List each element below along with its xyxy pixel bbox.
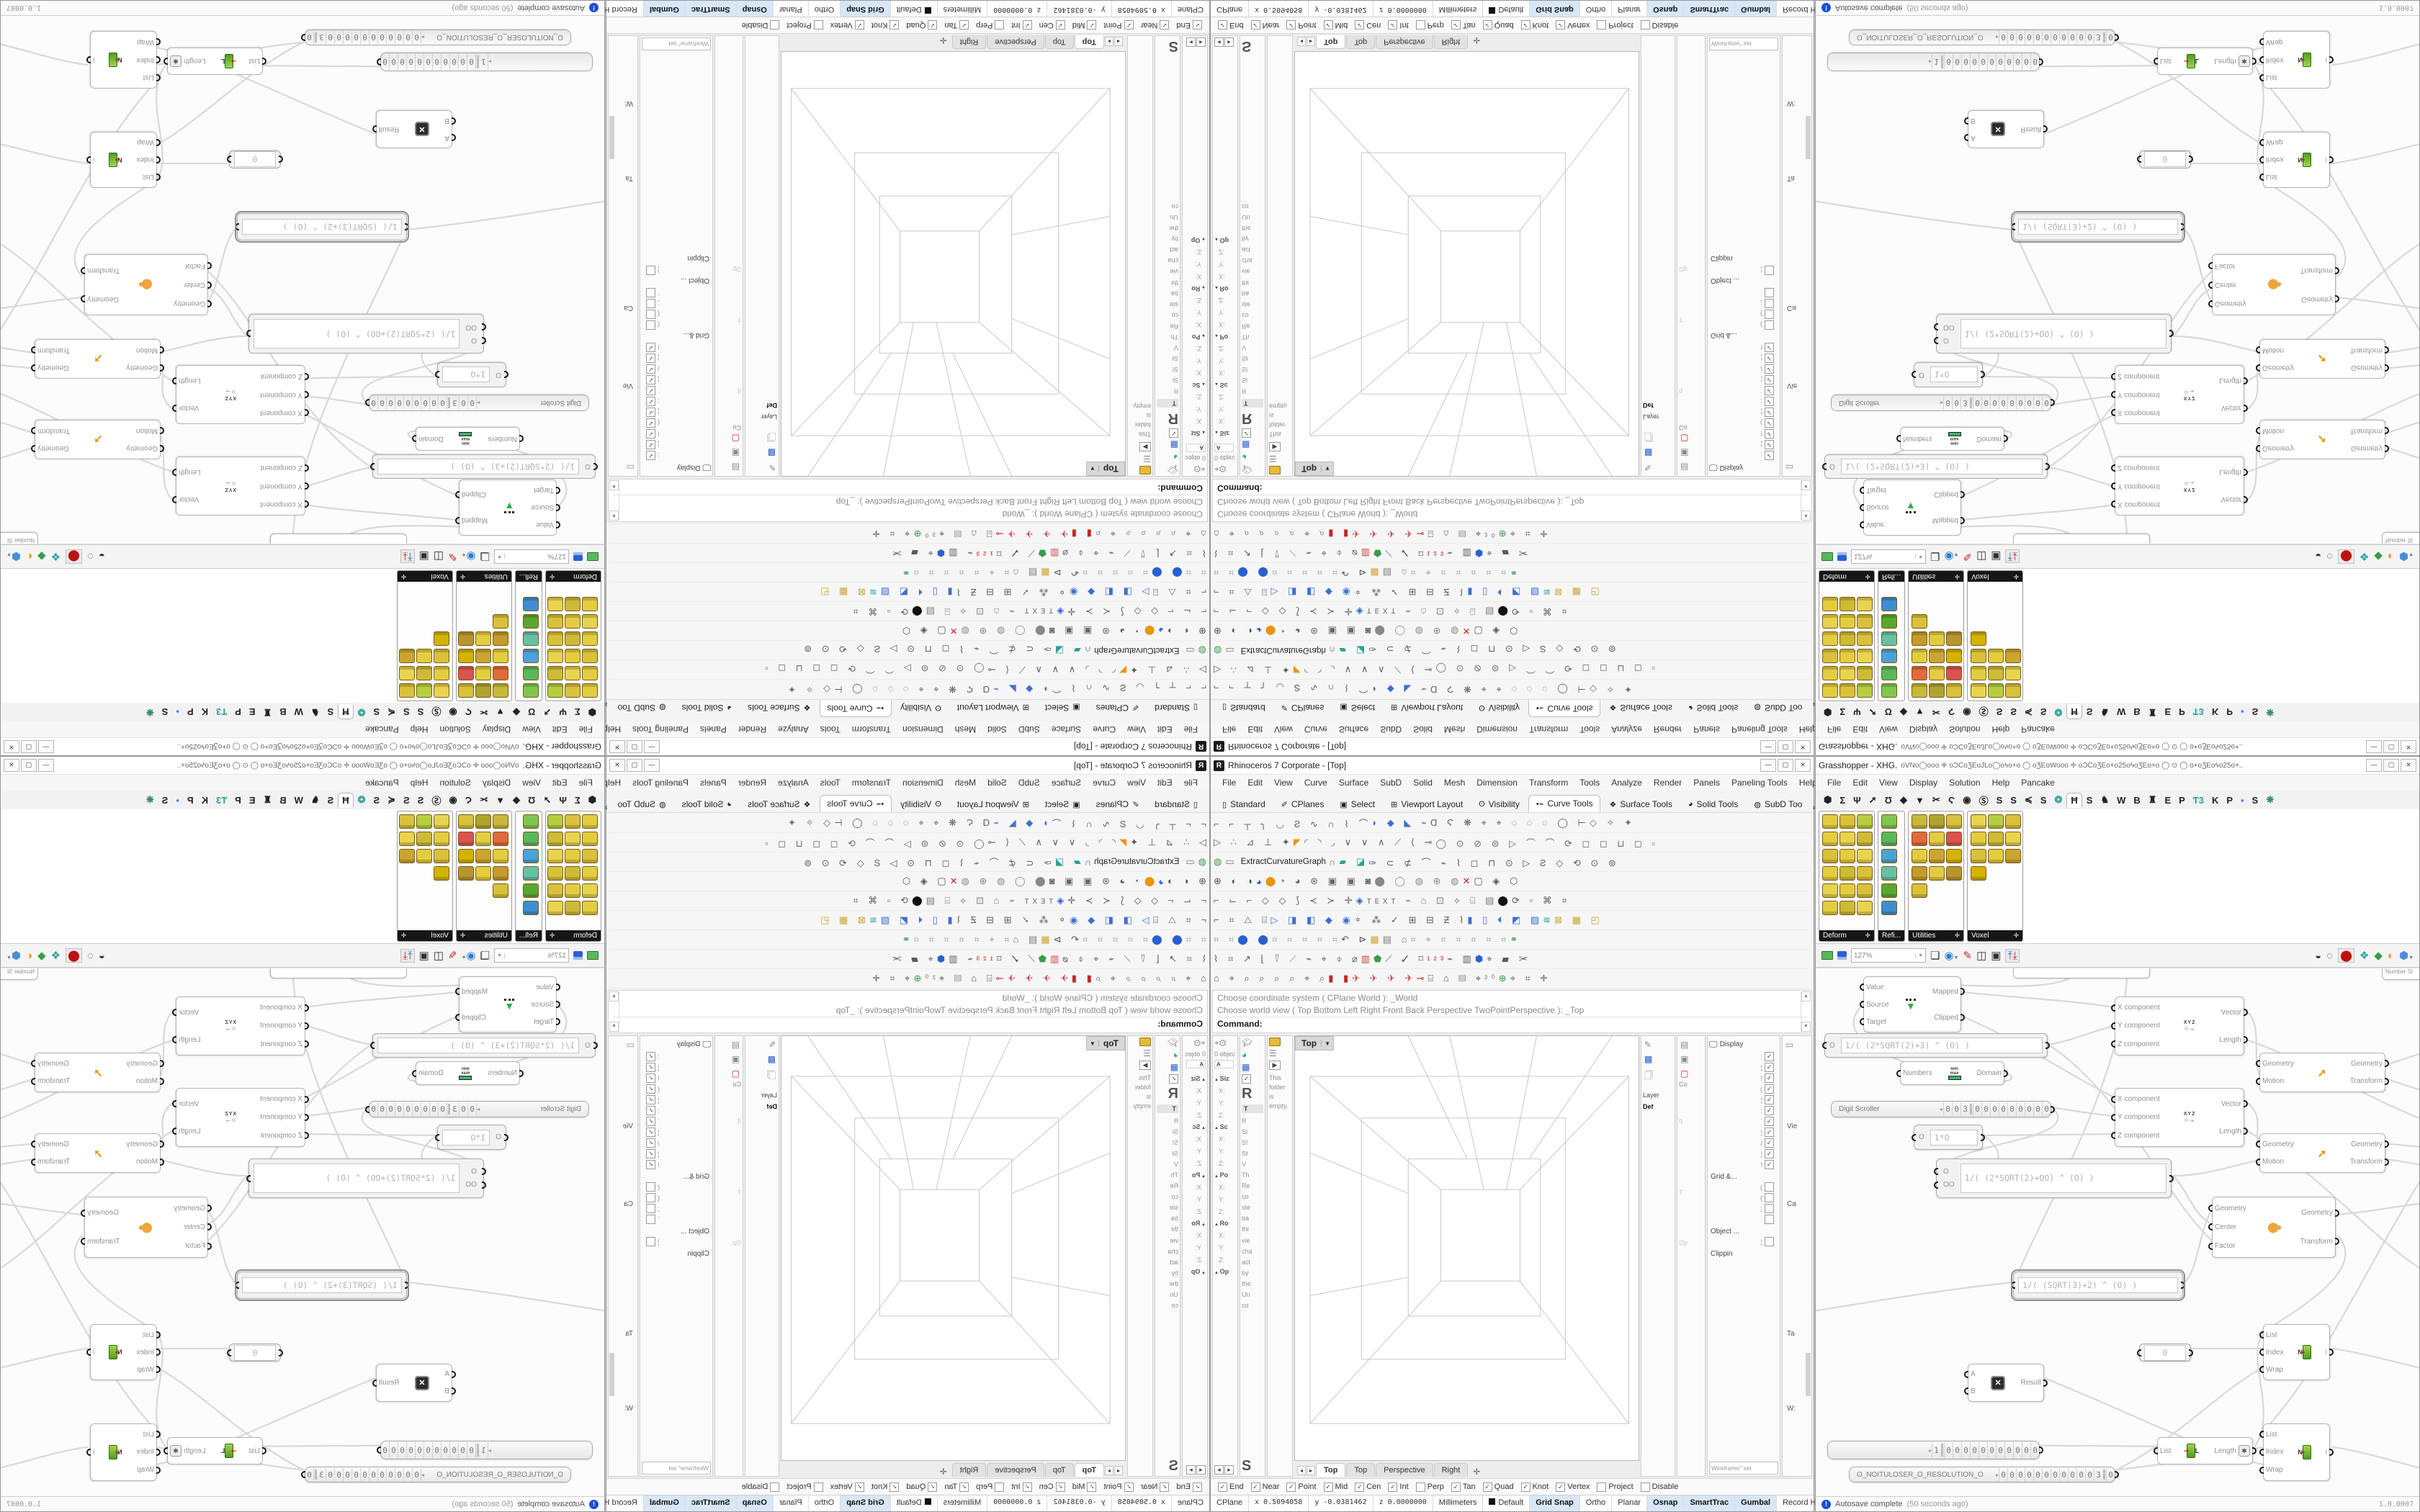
digit-cell[interactable]: 0 (1953, 1442, 1961, 1458)
gh-node-remap[interactable]: Value Source Target ▼ Mapped Clipped (1863, 480, 1961, 536)
rhino-toolbar-row-3[interactable]: ◍▭ExtractCurvatureGraph∩▰ ◪✑ ⊂ ⊄ ⌒ ⌁ ⌇ ◻… (609, 640, 1206, 660)
component-icon[interactable] (434, 683, 449, 698)
component-icon[interactable] (523, 649, 539, 663)
display-checkbox-row[interactable]: !✓ (1709, 1073, 1778, 1084)
gh-node-list-item-1[interactable]: List Index Wrap N i (90, 1324, 157, 1380)
tab-item[interactable]: ◆ (1896, 793, 1911, 807)
status-layer[interactable]: Default (890, 1495, 937, 1511)
input-port[interactable] (2259, 1366, 2264, 1373)
gh-node-move-1[interactable]: Geometry Motion ➚ Geometry Transform (2259, 1053, 2385, 1092)
display-checkbox-row[interactable]: ¦✓ (642, 439, 711, 450)
viewport-tab-top[interactable]: Top (1045, 1463, 1074, 1477)
checkbox[interactable]: ✓ (1193, 1482, 1202, 1492)
checkbox[interactable]: ✓ (646, 1117, 655, 1126)
digit-cell[interactable]: 0 (2068, 31, 2076, 44)
component-icon[interactable] (1912, 832, 1927, 846)
display-checkbox-row[interactable]: ¦✓ (1709, 1148, 1778, 1159)
preview-wire-icon[interactable]: ◌ (87, 551, 94, 563)
layer-default-row[interactable]: Def (747, 1103, 777, 1110)
menu-item[interactable]: Mesh (949, 723, 982, 736)
menu-item[interactable]: Transform (1523, 723, 1574, 736)
scroller-digits[interactable]: 00000000000 (381, 54, 476, 70)
display-checkbox-row[interactable]: ˙ (1709, 1214, 1778, 1225)
collapsed-panel[interactable]: ▤ ▣ ▢ Co q T Op (714, 35, 743, 477)
component-icon[interactable] (582, 631, 598, 646)
tab-item[interactable]: ❋ (2262, 705, 2277, 719)
tab-item[interactable]: S (2249, 706, 2262, 719)
toolbar-icons[interactable]: ⌐ ⌐ ┬ ╮ ◡ Ƨ ∿ ∩ ⌇ ⌒ (1049, 683, 1206, 696)
digit-cell[interactable]: 0 (378, 31, 387, 44)
component-icon[interactable] (547, 866, 563, 881)
folder-panel[interactable]: ☰ ▶ This folder is empty. (1267, 35, 1293, 477)
digit-cell[interactable]: 0 (2025, 1468, 2033, 1481)
checkbox[interactable]: ✓ (1765, 1117, 1774, 1126)
toolbar-icons[interactable]: ⌗ ⌖ ⌗ ⌗ ⌗ ⌗ ⌗ (910, 567, 1010, 578)
gh-node-resolution-scroller[interactable]: O_NOITULOSER_O_RESOLUTION_O ▸ 0000000000… (1849, 30, 2115, 45)
checkbox[interactable] (646, 266, 655, 275)
scroller-digits[interactable]: 00000000000 (1999, 1468, 2094, 1481)
toolbar-icons[interactable]: ▮ ▮ (1328, 528, 1352, 539)
digit-cell[interactable]: 0 (2013, 54, 2022, 70)
tab-item[interactable]: S (158, 706, 172, 719)
tab-item[interactable]: Ʊ (524, 793, 539, 807)
component-icon[interactable] (1912, 631, 1927, 646)
toolbar-icons[interactable]: ↶ ⊳ (1341, 934, 1370, 945)
object-checkbox-list[interactable]: ¦ (1709, 1236, 1778, 1247)
osnap-toggle[interactable]: ✓End (1218, 1482, 1244, 1492)
toolbar-icons[interactable]: ∩ (1081, 645, 1091, 656)
rhino-toolbar-row-6[interactable]: ⌐ ⌗ △ ⌸▷ ◨ ◧ ◆ ◉⚬ ⁂ ✓ ⊞ ⊟ Ƶ ⌇▮ ▯ ⏴ ◩ ▨≋⊠… (1214, 911, 1811, 930)
component-icon[interactable] (458, 832, 474, 846)
scroll-left-button[interactable]: ◂ (1214, 37, 1224, 47)
display-checkbox-row[interactable]: ˙✓ (1709, 385, 1778, 396)
rhino-toolbar-row-7[interactable]: ⌗ ⌗⬤ ⬤⌗ ⌗ ⌗ ⌗ ⌗↶ ⊳▦▤ ⌂⌗ ⌖ ⌗ ⌗ ⌗ ⌗ ⌗⚭ (609, 562, 1206, 582)
digit-cell[interactable]: 0 (430, 1102, 439, 1116)
rhino-tab-select[interactable]: ▣Select (1038, 700, 1088, 716)
toolbar-icons[interactable]: ⌂ ⌖ ⌕ ⌕ ⌕ ⌕ ⌖ ⌕ (1092, 973, 1206, 984)
component-icon[interactable] (458, 814, 474, 829)
display-checked-list[interactable]: :✓¦✓!✓(✓¦✓:✓˙✓¦✓/✓¦✓!✓ (642, 1051, 711, 1170)
preview-eye-icon[interactable]: ◉▼ (462, 949, 476, 962)
props-scrollbar[interactable] (609, 1353, 614, 1396)
digit-cell[interactable]: 3 (1960, 396, 1969, 410)
toolbar-icons[interactable]: ◜ ◝ ◞ ∨ ∨ ∧ ⟋ ⟨ ⊸ (1304, 664, 1436, 675)
digit-cell[interactable]: 0 (2007, 1468, 2016, 1481)
rhino-toolbar-row-6[interactable]: ⌐ ⌗ △ ⌸▷ ◨ ◧ ◆ ◉⚬ ⁂ ✓ ⊞ ⊟ Ƶ ⌇▮ ▯ ⏴ ◩ ▨≋⊠… (1214, 582, 1811, 601)
osnap-toggle[interactable]: ✓Knot (871, 21, 900, 30)
tab-item[interactable]: ✂ (476, 793, 491, 807)
toolbar-icons[interactable]: ᴛᴇxᴛ ⌁ ⌂ ⊡ ⟡ ⌸ ▤ (923, 606, 1054, 617)
menu-item[interactable]: View (516, 776, 547, 789)
toolbar-command-label[interactable]: ExtractCurvatureGraph (1091, 858, 1182, 866)
input-port[interactable] (2208, 262, 2213, 269)
tab-item[interactable]: S (2037, 706, 2051, 719)
status-smarttrack[interactable]: SmartTrac (685, 1, 736, 17)
osnap-toggle[interactable]: ✓Near (1141, 1482, 1170, 1492)
digit-cell[interactable]: 0 (442, 54, 450, 70)
toolbar-icons[interactable]: ⟋ ✓ ⌑ (1385, 547, 1427, 559)
tab-item[interactable]: P (184, 793, 197, 807)
digit-cell[interactable]: 0 (1981, 396, 1990, 410)
toolbar-icons[interactable]: ⌗ ⌖ ⌗ ⌗ ⌗ ⌗ ⌗ (910, 934, 1010, 945)
gh-close-button[interactable]: ✕ (2401, 740, 2416, 753)
checkbox[interactable]: ✓ (1765, 1063, 1774, 1072)
toolbar-icons[interactable]: ⌇ ⌗ ↗ ⌊ ⍢ ⟋ ⌁ ⌖ ⌽ ⌀ (1214, 547, 1361, 559)
tab-item[interactable]: Ⓢ (1976, 704, 1992, 721)
menu-item[interactable]: Paneling Tools (627, 723, 694, 736)
toolbar-icons[interactable]: ◇ ✧ ✦ (784, 683, 830, 695)
component-icon[interactable] (1822, 901, 1838, 915)
checkbox[interactable] (646, 1204, 655, 1213)
toolbar-icons[interactable]: ◯ ⊙ ⊘ ⊜ ▷ ⌒ ⌒ ⟳ ◻ ◻ ⊔ ◻ ▫ (1435, 836, 1659, 850)
palette-label[interactable]: Refi... (516, 571, 542, 582)
layer-default-row[interactable]: Def (1643, 1103, 1673, 1110)
component-icon[interactable] (399, 683, 415, 698)
tab-item[interactable]: Ⓢ (1976, 792, 1992, 809)
scroller-digit[interactable]: 1 (480, 54, 488, 70)
component-icon[interactable] (565, 649, 581, 663)
status-planar[interactable]: Planar (1612, 1, 1647, 17)
gh-node-long-scroller[interactable]: ▸ 1 00000000000 (380, 53, 593, 71)
checkbox[interactable] (1641, 21, 1650, 30)
digit-cell[interactable]: 0 (1999, 396, 2007, 410)
digit-cell[interactable]: 0 (2033, 31, 2042, 44)
digit-cell[interactable]: 0 (2051, 1468, 2059, 1481)
osnap-toggle[interactable]: ✓Cen (1355, 21, 1381, 30)
rhino-tab-select[interactable]: ▣Select (1332, 700, 1382, 716)
menu-item[interactable]: SubD (1013, 723, 1046, 736)
rhino-tab-standard[interactable]: ▯Standard (1215, 796, 1273, 812)
digit-cell[interactable]: 0 (387, 31, 395, 44)
checkbox[interactable]: ✓ (889, 21, 899, 30)
digit-cell[interactable]: 0 (1990, 396, 1999, 410)
menu-item[interactable]: Solid (982, 723, 1013, 736)
toolbar-icons[interactable]: ▭ (1182, 856, 1194, 868)
display-checkbox-row[interactable]: !✓ (642, 1159, 711, 1170)
tab-item[interactable]: S (414, 793, 428, 807)
component-icon[interactable] (1929, 666, 1945, 680)
osnap-toggle[interactable]: ✓Vertex (1556, 1482, 1590, 1492)
checkbox[interactable] (814, 1482, 823, 1492)
toolbar-icons[interactable]: ⬢ (933, 953, 945, 965)
scroller-digit[interactable]: 1 (480, 1442, 488, 1458)
menu-item[interactable]: Transform (1523, 776, 1574, 789)
menu-item[interactable]: Solution (1943, 723, 1986, 736)
component-icon[interactable] (1881, 614, 1897, 629)
blue-hex-icon[interactable]: ⬢▼ (6, 550, 21, 563)
gh-node-digit-scroller[interactable]: Digit Scroller ▸ 003 000000000 (1831, 1101, 2051, 1117)
input-port[interactable] (2259, 1349, 2264, 1356)
output-port[interactable] (163, 1447, 168, 1454)
digit-cell[interactable]: 0 (1996, 54, 2004, 70)
digit-cell[interactable]: 0 (460, 1102, 468, 1116)
toolbar-icons[interactable]: ◤ (1294, 837, 1304, 848)
digit-cell[interactable]: 0 (352, 31, 361, 44)
input-port[interactable] (2259, 1467, 2264, 1474)
display-checkbox-row[interactable]: !✓ (1709, 342, 1778, 353)
digit-cell[interactable]: 0 (1999, 1102, 2007, 1116)
osnap-bar[interactable]: ✓End✓Near✓Point✓Mid✓Cen✓IntPerp✓Tan✓Quad… (1211, 1478, 1814, 1495)
menu-item[interactable]: View (1121, 723, 1152, 736)
palette-expand-icon[interactable]: ✛ (1955, 932, 1960, 940)
menu-item[interactable]: Dimension (1471, 723, 1523, 736)
checkbox[interactable]: ✓ (928, 1482, 937, 1492)
component-icon[interactable] (582, 814, 598, 829)
checkbox[interactable]: ✓ (1286, 21, 1296, 30)
input-port[interactable] (2111, 391, 2115, 398)
command-area[interactable]: Choose coordinate system ( CPlane World … (608, 990, 1208, 1033)
digit-cell[interactable]: 0 (459, 1442, 467, 1458)
toolbar-icons[interactable]: ▰ ◪ (1052, 856, 1081, 868)
component-icon[interactable] (565, 901, 581, 915)
toolbar-icons[interactable]: ✑ ⊂ ⊄ ⌒ ⌁ ⌇ ◻ ⊓ ⊙ ▷ Ƨ ◇ ⟲ ⊙ ⊚ (1368, 855, 1620, 869)
digit-cell[interactable]: 0 (381, 54, 390, 70)
checkbox[interactable]: ✓ (1023, 21, 1032, 30)
digit-cell[interactable]: 0 (2085, 31, 2094, 44)
toolbar-icons[interactable]: ▦ (1037, 567, 1049, 578)
toolbar-icons[interactable]: ⚬ ⁂ ✓ ⊞ ⊟ Ƶ ⌇ (1354, 914, 1468, 926)
toolbar-icons[interactable]: ⌖ ▰ ✂ (889, 547, 933, 559)
osnap-toggle[interactable]: Disable (742, 1482, 780, 1492)
input-port[interactable] (1964, 1371, 1968, 1378)
gh-node-list-item-1[interactable]: List Index Wrap N i (90, 132, 157, 188)
tab-item[interactable]: E (246, 706, 259, 719)
gh-node-long-scroller[interactable]: ▸ 1 00000000000 (1827, 53, 2040, 71)
close-button[interactable]: ✕ (1795, 740, 1811, 753)
input-port[interactable] (1934, 1168, 1938, 1175)
gh-node-partial-slider[interactable]: Number Sl (1, 532, 38, 544)
palette-expand-icon[interactable]: ✛ (1865, 932, 1870, 940)
boxedit-field[interactable] (1214, 444, 1234, 452)
toolbar-icons[interactable]: Ɑ Ϛ ❋ ⌖ ⌖ ◌ ◌ ◌ ◯ ⊢ (830, 683, 990, 695)
display-checkbox-row[interactable]: :✓ (1709, 1051, 1778, 1062)
osnap-toggle[interactable]: ✓Int (1011, 21, 1031, 30)
menu-item[interactable]: Solution (434, 723, 476, 736)
menu-item[interactable]: Curve (1087, 776, 1121, 789)
toolbar-icons[interactable]: ⟋ ✓ ⌑ (993, 547, 1035, 559)
tab-item[interactable]: Ʊ (1881, 706, 1896, 719)
gh-node-list-length[interactable]: List L Length✱ (167, 1437, 263, 1464)
menu-item[interactable]: Edit (547, 776, 573, 789)
component-icon[interactable] (1822, 883, 1838, 898)
tab-item[interactable]: B (2130, 793, 2143, 807)
display-checked-list[interactable]: :✓¦✓!✓(✓¦✓:✓˙✓¦✓/✓¦✓!✓ (1709, 342, 1778, 461)
digit-cell[interactable]: 0 (424, 1442, 433, 1458)
digit-cell[interactable]: 0 (378, 396, 387, 410)
menu-item[interactable]: View (1268, 723, 1299, 736)
expand-button[interactable]: ▶ (1269, 442, 1281, 451)
osnap-toggle[interactable]: ✓Cen (1355, 1482, 1381, 1492)
component-icon[interactable] (1857, 832, 1873, 846)
display-checkbox-row[interactable]: :✓ (642, 1051, 711, 1062)
component-icon[interactable] (1857, 814, 1873, 829)
grid-checkbox-list[interactable]: ((;˙ (642, 1182, 711, 1225)
toolbar-icons[interactable]: ▭ (1225, 856, 1237, 868)
tab-item[interactable]: K (2208, 706, 2222, 719)
gh-node-remap[interactable]: Value Source Target ▼ Mapped Clipped (459, 976, 557, 1032)
display-checkbox-row[interactable]: /✓ (642, 1138, 711, 1148)
display-checkbox-row[interactable]: ¦✓ (1709, 353, 1778, 364)
menu-item[interactable]: Analyze (1605, 776, 1648, 789)
checkbox[interactable] (1765, 266, 1774, 275)
input-port[interactable] (2154, 1447, 2158, 1454)
menu-item[interactable]: Edit (1152, 776, 1178, 789)
digit-cell[interactable]: 0 (459, 54, 467, 70)
zoom-extents-icon[interactable]: ❏ (1930, 550, 1940, 563)
component-icon[interactable] (1822, 866, 1838, 881)
osnap-toggle[interactable]: Project (1597, 1482, 1633, 1492)
menu-item[interactable]: Display (1904, 723, 1943, 736)
viewport-tab-right[interactable]: Right (952, 35, 987, 49)
input-port[interactable] (2208, 1243, 2213, 1250)
toolbar-icons[interactable]: ⟳ ▫ ⌘ ⌗ (849, 606, 908, 617)
rhino-toolbar-row-1[interactable]: ⌐ ⌐ ┬ ╮ ◡ Ƨ ∿ ∩ ⌇ ⌒◗ ◆ ◣ ⌁Ɑ Ϛ ❋ ⌖ ⌖ ◌ ◌ … (609, 679, 1206, 698)
component-icon[interactable] (1971, 649, 1986, 663)
tab-item[interactable]: ♜ (2145, 793, 2161, 807)
osnap-toggle[interactable]: ✓Int (1011, 1482, 1031, 1492)
component-icon[interactable] (565, 832, 581, 846)
checkbox[interactable] (1416, 1482, 1425, 1492)
digit-cell[interactable]: 0 (2025, 1102, 2033, 1116)
tab-item[interactable]: ◆ (509, 705, 524, 719)
gh-node-scale[interactable]: Geometry Center Factor ⬤● Geometry Trans… (84, 254, 208, 315)
component-icon[interactable] (1857, 666, 1873, 680)
component-icon[interactable] (434, 631, 449, 646)
teal-blob-icon[interactable]: ❖ (2359, 550, 2369, 563)
gh-node-vector-xyz-1[interactable]: X component Y component Z component XYZ○… (2115, 996, 2244, 1056)
palette-expand-icon[interactable]: ✛ (401, 572, 407, 580)
component-icon[interactable] (1929, 649, 1945, 663)
gh-node-remap[interactable]: Value Source Target ▼ Mapped Clipped (459, 480, 557, 536)
palette-label[interactable]: Deform✛ (1819, 571, 1874, 582)
component-icon[interactable] (523, 849, 539, 863)
digit-cell[interactable]: 0 (439, 1102, 447, 1116)
display-checkbox-row[interactable]: ¦ (1709, 265, 1778, 276)
output-port[interactable] (455, 491, 460, 498)
component-icon[interactable] (547, 683, 563, 698)
tab-item[interactable]: ❋ (2262, 793, 2277, 807)
toolbar-icons[interactable]: ▢ ◈ ⬡ (899, 625, 946, 636)
toolbar-icons[interactable]: ⌐ ⌐ ┬ ╮ ◡ Ƨ ∿ ∩ ⌇ ⌒ (1214, 816, 1371, 830)
teal-blob-icon[interactable]: ❖ (2359, 949, 2369, 962)
scroller-digit-value[interactable]: 3 (318, 1468, 326, 1481)
toolbar-icons[interactable]: ⬤ (1265, 876, 1280, 887)
component-icon[interactable] (1857, 883, 1873, 898)
gh-minimize-button[interactable]: — (38, 740, 54, 753)
panel2-tab[interactable]: T (1157, 399, 1178, 408)
zoom-dropdown-arrow[interactable]: ▼ (1915, 953, 1923, 958)
output-port[interactable] (246, 1175, 251, 1182)
toolbar-icons[interactable]: ▦ (1370, 567, 1382, 578)
rhino-tab-cplanes[interactable]: ✐CPlanes (1274, 796, 1332, 812)
toolbar-icons[interactable]: ⌐ ⌐ ┬ ╮ ◡ Ƨ ∿ ∩ ⌇ ⌒ (1214, 683, 1371, 696)
toolbar-icons[interactable]: ⌖ ⌗ ✛ (1510, 973, 1551, 984)
osnap-toggle[interactable]: ✓Vertex (830, 1482, 864, 1492)
tab-item[interactable]: ♞ (2097, 793, 2112, 807)
digit-cell[interactable]: 0 (344, 1468, 352, 1481)
component-icon[interactable] (493, 649, 508, 663)
digit-cell[interactable]: 0 (2007, 396, 2016, 410)
viewport-tab-perspective[interactable]: Perspective (1376, 1463, 1433, 1477)
menu-item[interactable]: Help (405, 723, 434, 736)
input-port[interactable] (2256, 427, 2260, 434)
component-icon[interactable] (475, 849, 491, 863)
osnap-toggle[interactable]: ✓Vertex (830, 21, 864, 30)
tab-item[interactable]: ▪ (2237, 793, 2248, 807)
osnap-toggle[interactable]: Perp (1416, 1482, 1444, 1492)
tab-item[interactable]: Ψ (555, 706, 570, 719)
rhino-tab-surface-tools[interactable]: ❖Surface Tools (740, 796, 817, 812)
toolbar-icons[interactable]: ⌁ ▥ (1447, 953, 1475, 965)
gh-node-long-scroller[interactable]: ▸ 1 00000000000 (1827, 1441, 2040, 1459)
expand-button[interactable]: ▶ (1139, 442, 1151, 451)
tab-item[interactable]: S (324, 706, 338, 719)
display-checkbox-row[interactable]: ; (642, 1203, 711, 1214)
menu-item[interactable]: View (1873, 723, 1904, 736)
scroller-digits[interactable]: 000000000 (1973, 396, 2051, 410)
rhino-toolbar-row-1[interactable]: ⌐ ⌐ ┬ ╮ ◡ Ƨ ∿ ∩ ⌇ ⌒◗ ◆ ◣ ⌁Ɑ Ϛ ❋ ⌖ ⌖ ◌ ◌ … (1214, 679, 1811, 698)
osnap-toggle[interactable]: Perp (976, 21, 1004, 30)
menu-item[interactable]: Pancake (359, 723, 405, 736)
toolbar-icons[interactable]: ▤ ⌂ (1383, 567, 1411, 578)
display-checkbox-row[interactable]: ˙ (642, 1214, 711, 1225)
close-button[interactable]: ✕ (609, 759, 625, 772)
display-checkbox-row[interactable]: !✓ (1709, 1159, 1778, 1170)
menu-item[interactable]: Transform (846, 776, 897, 789)
toolbar-icons[interactable]: ᴛᴇxᴛ ⌁ ⌂ ⊡ ⟡ ⌸ ▤ (923, 895, 1054, 906)
output-port[interactable] (31, 427, 35, 434)
toolbar-icons[interactable]: ⬢ (1475, 953, 1487, 965)
checkbox[interactable]: ✓ (1124, 21, 1134, 30)
menu-item[interactable]: Pancake (359, 776, 405, 789)
toolbar-icons[interactable]: ▷ ◨ ◧ ◆ ◉ (1066, 586, 1149, 598)
gh-node-multiplication[interactable]: A B ✕ Result (376, 1364, 452, 1402)
display-checkbox-row[interactable]: ˙✓ (1709, 1116, 1778, 1127)
tab-item[interactable]: ◆ (509, 793, 524, 807)
toolbar-icons[interactable]: ◔ ◕ ⊛ ▣ ▣ ◙ (1279, 625, 1374, 636)
checkbox[interactable]: ✓ (646, 364, 655, 374)
component-icon[interactable] (475, 666, 491, 680)
toolbar-icons[interactable]: ⚭ (1510, 934, 1521, 945)
digit-cell[interactable]: 0 (1970, 54, 1978, 70)
boxedit-field[interactable] (1186, 1060, 1206, 1068)
blue-hex-icon[interactable]: ⬢▼ (6, 949, 21, 962)
output-port[interactable] (172, 469, 176, 476)
tab-item[interactable]: S (1993, 706, 2007, 719)
gh-node-expression-1x0[interactable]: O 1*O (1914, 1125, 1983, 1150)
component-icon[interactable] (458, 683, 474, 698)
toolbar-icons[interactable]: ◤ (1116, 837, 1126, 848)
display-checkbox-row[interactable]: ¦ (642, 265, 711, 276)
checkbox[interactable] (646, 1182, 655, 1192)
toolbar-icons[interactable]: ▮ ▯ ⏴ ◩ ▨ (877, 586, 953, 598)
digit-cell[interactable]: 0 (407, 54, 416, 70)
toolbar-icons[interactable]: ⬤ (1497, 895, 1512, 906)
digit-cell[interactable]: 0 (387, 396, 395, 410)
osnap-toggle[interactable]: ✓Point (1104, 1482, 1134, 1492)
scroller-digits[interactable]: 000000000 (1973, 1102, 2051, 1116)
output-port[interactable] (370, 463, 375, 470)
checkbox[interactable]: ✓ (646, 375, 655, 384)
input-port[interactable] (2111, 464, 2115, 472)
gh-node-multiplication[interactable]: A B ✕ Result (376, 110, 452, 148)
gh-node-list-length[interactable]: List L Length✱ (2157, 1437, 2253, 1464)
toolbar-icons[interactable]: ⌗ ⌖ ⌗ ⌗ ⌗ ⌗ ⌗ (1410, 934, 1510, 945)
component-icon[interactable] (1822, 832, 1838, 846)
digit-cell[interactable]: 0 (2004, 1442, 2013, 1458)
component-icon[interactable] (547, 883, 563, 898)
command-area[interactable]: Choose coordinate system ( CPlane World … (1212, 479, 1812, 522)
